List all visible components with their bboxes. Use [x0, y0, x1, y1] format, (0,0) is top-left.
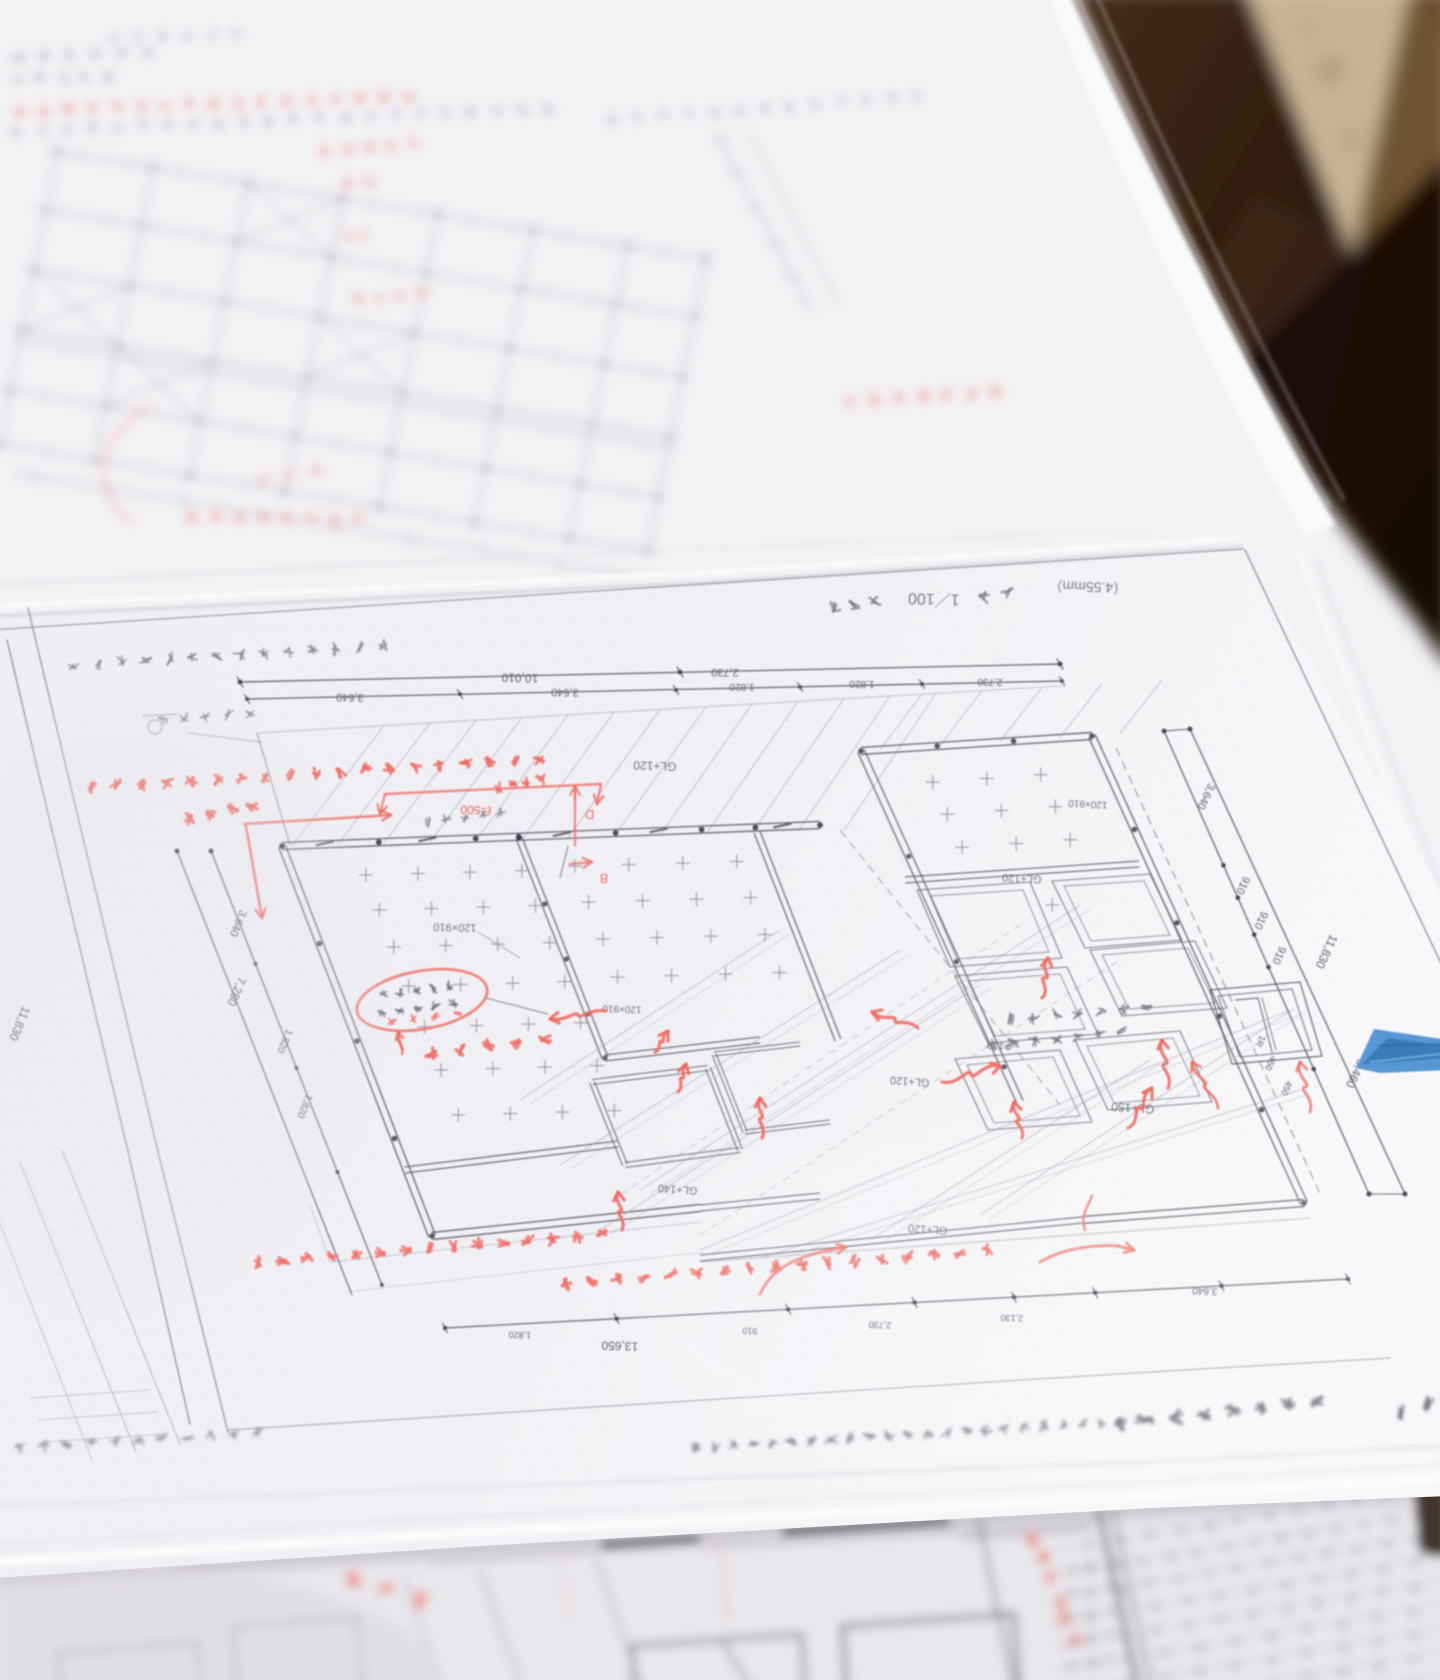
svg-text:D: D: [585, 807, 595, 822]
svg-text:1／100: 1／100: [908, 589, 960, 608]
svg-text:B: B: [599, 871, 608, 886]
svg-text:3,640: 3,640: [336, 691, 364, 703]
svg-text:13,650: 13,650: [601, 1338, 638, 1353]
svg-text:（4.55mm）: （4.55mm）: [1048, 578, 1127, 597]
svg-text:2,730: 2,730: [977, 676, 1003, 687]
svg-text:Φ120: Φ120: [987, 1039, 1013, 1052]
svg-text:3,640: 3,640: [551, 686, 579, 698]
svg-text:120×910: 120×910: [1068, 797, 1108, 810]
svg-text:GL+120: GL+120: [633, 758, 677, 774]
svg-text:1,820: 1,820: [508, 1330, 531, 1341]
svg-text:10,010: 10,010: [501, 671, 538, 686]
svg-text:120×910: 120×910: [602, 1002, 642, 1014]
svg-text:GL+120: GL+120: [1002, 871, 1042, 885]
svg-text:1,820: 1,820: [849, 678, 875, 689]
svg-text:2,730: 2,730: [711, 666, 739, 678]
svg-text:120×910: 120×910: [433, 921, 476, 934]
svg-text:1,820: 1,820: [729, 681, 755, 692]
